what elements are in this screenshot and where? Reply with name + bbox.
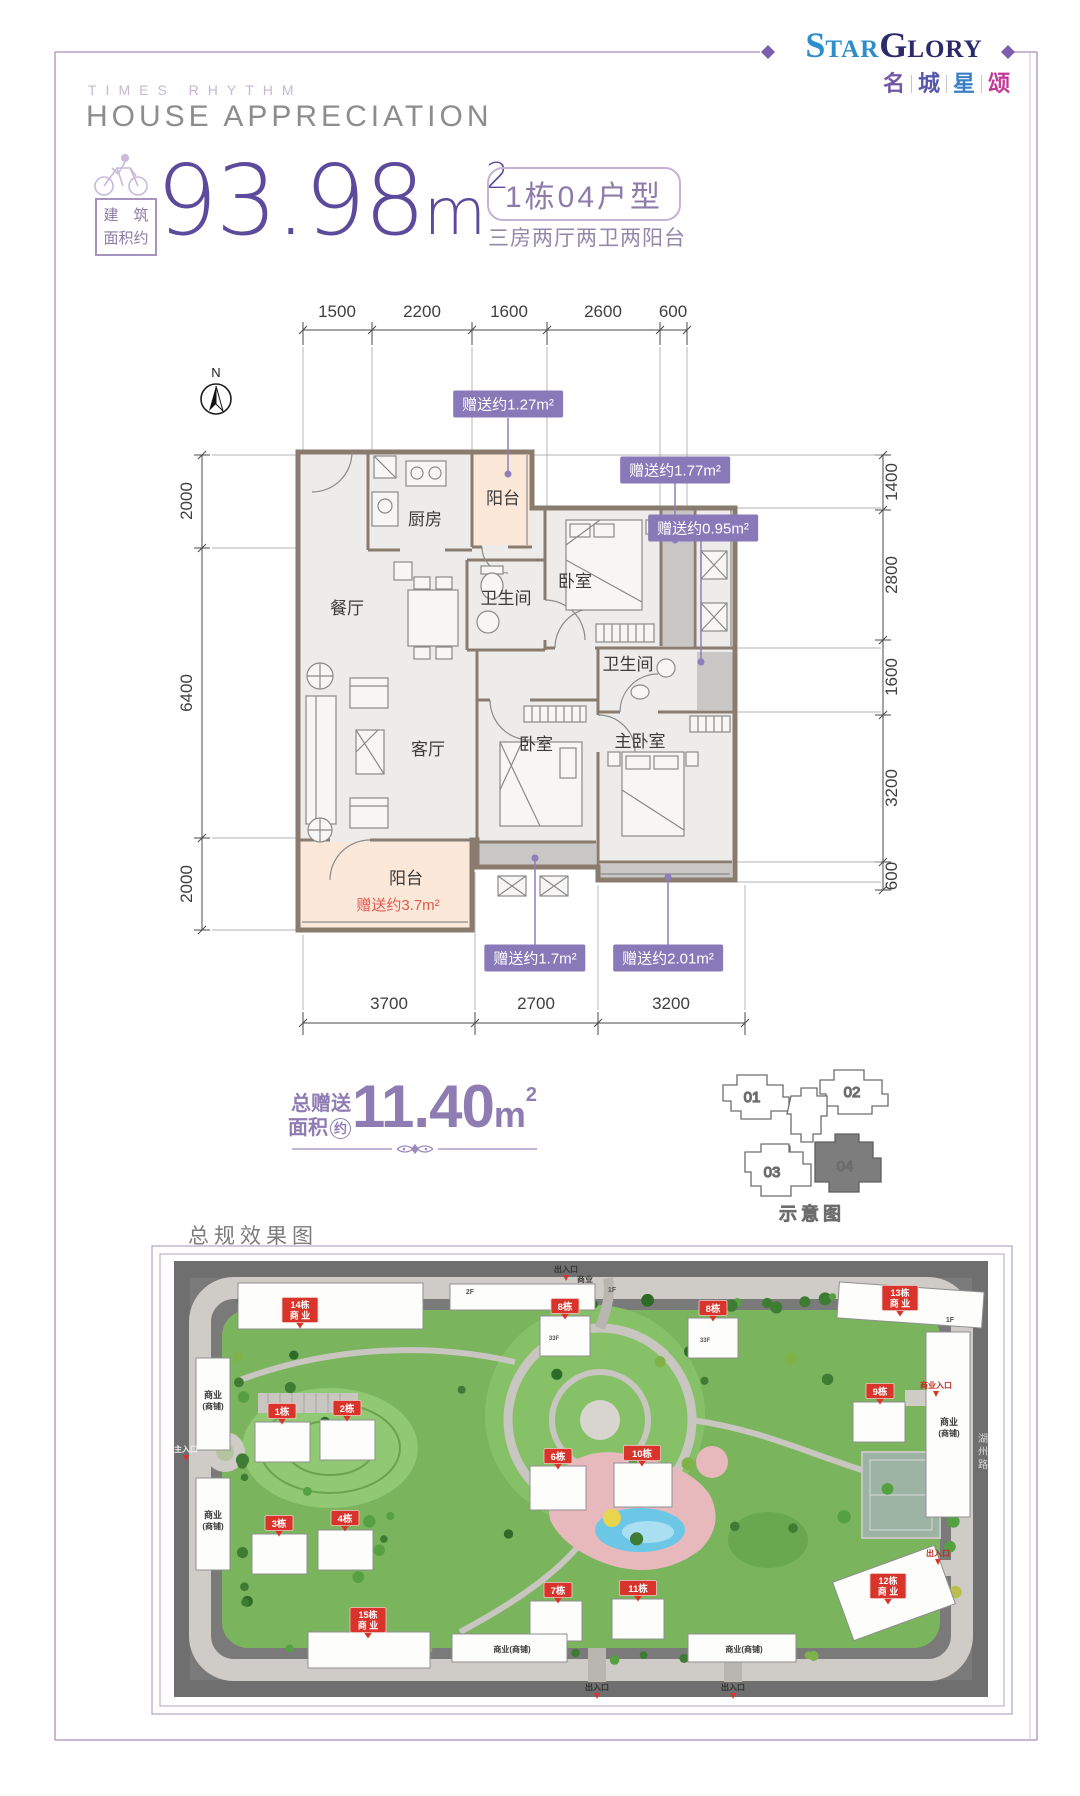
svg-text:01: 01 bbox=[744, 1089, 761, 1106]
diamond-icon bbox=[761, 45, 775, 59]
svg-text:主入口: 主入口 bbox=[174, 1444, 198, 1454]
svg-text:1F: 1F bbox=[946, 1317, 955, 1324]
svg-text:(商铺): (商铺) bbox=[202, 1401, 224, 1411]
svg-text:2000: 2000 bbox=[177, 865, 196, 903]
flourish-divider bbox=[292, 1144, 537, 1154]
svg-text:2栋: 2栋 bbox=[340, 1403, 355, 1415]
svg-text:10栋: 10栋 bbox=[632, 1448, 653, 1460]
cyclist-icon bbox=[95, 154, 147, 195]
svg-text:出入口: 出入口 bbox=[554, 1264, 578, 1274]
svg-text:3700: 3700 bbox=[370, 994, 408, 1013]
svg-text:商业入口: 商业入口 bbox=[920, 1380, 952, 1390]
svg-text:1600: 1600 bbox=[490, 302, 528, 321]
area-value: 93.98m2 bbox=[156, 144, 509, 257]
balcony-gift-note: 赠送约3.7m² bbox=[356, 897, 439, 914]
svg-text:商业: 商业 bbox=[204, 1389, 222, 1400]
svg-text:13栋: 13栋 bbox=[890, 1287, 909, 1298]
svg-text:商 业: 商 业 bbox=[890, 1298, 911, 1309]
svg-text:2600: 2600 bbox=[584, 302, 622, 321]
svg-text:1400: 1400 bbox=[882, 463, 901, 501]
keyplan-caption: 示意图 bbox=[779, 1204, 845, 1224]
svg-text:3栋: 3栋 bbox=[272, 1518, 287, 1530]
svg-text:6栋: 6栋 bbox=[551, 1451, 566, 1463]
svg-text:3200: 3200 bbox=[652, 994, 690, 1013]
room-label-dining: 餐厅 bbox=[330, 599, 364, 618]
svg-text:2F: 2F bbox=[466, 1289, 475, 1296]
poster-page: N 1500 2200 1600 2600 600 2000 6400 2000 bbox=[0, 0, 1080, 1796]
brand-kicker: TIMES RHYTHM bbox=[88, 82, 303, 98]
svg-text:8栋: 8栋 bbox=[706, 1303, 721, 1315]
svg-text:商 业: 商 业 bbox=[358, 1620, 379, 1631]
built-area-tag-line2: 面积约 bbox=[103, 227, 148, 250]
svg-text:湖州路: 湖州路 bbox=[978, 1433, 988, 1471]
room-label-living: 客厅 bbox=[411, 740, 445, 759]
svg-text:2200: 2200 bbox=[403, 302, 441, 321]
site-plan: 14栋商 业8栋8栋13栋商 业1栋2栋9栋6栋10栋3栋4栋7栋11栋12栋商… bbox=[152, 1246, 1012, 1714]
room-label-balcony-bottom: 阳台 bbox=[389, 869, 423, 888]
svg-text:1F: 1F bbox=[608, 1287, 617, 1294]
room-label-bedroom-top: 卧室 bbox=[558, 572, 592, 591]
svg-text:2000: 2000 bbox=[177, 482, 196, 520]
svg-text:商业: 商业 bbox=[577, 1274, 593, 1284]
room-label-bath-right: 卫生间 bbox=[603, 655, 654, 674]
svg-text:8栋: 8栋 bbox=[558, 1301, 573, 1313]
svg-text:4栋: 4栋 bbox=[338, 1513, 353, 1525]
built-area-tag-line1: 建 筑 bbox=[103, 204, 148, 227]
gift-area-17 bbox=[479, 842, 596, 865]
balcony-bottom-area bbox=[300, 842, 470, 928]
room-label-bath-mid: 卫生间 bbox=[481, 589, 532, 608]
gift-chip-0-95: 赠送约0.95m² bbox=[648, 515, 758, 542]
unit-type-badge: 1栋04户型 bbox=[487, 167, 681, 221]
gift-chip-1-7: 赠送约1.7m² bbox=[484, 945, 585, 972]
svg-text:9栋: 9栋 bbox=[873, 1386, 888, 1398]
svg-text:03: 03 bbox=[764, 1164, 781, 1181]
svg-text:7栋: 7栋 bbox=[551, 1585, 566, 1597]
svg-text:1栋: 1栋 bbox=[275, 1406, 290, 1418]
svg-text:出入口: 出入口 bbox=[721, 1682, 745, 1692]
svg-text:2800: 2800 bbox=[882, 556, 901, 594]
svg-text:商业(商铺): 商业(商铺) bbox=[493, 1644, 531, 1654]
room-label-bedroom-mid: 卧室 bbox=[519, 735, 553, 754]
svg-text:11栋: 11栋 bbox=[628, 1583, 648, 1595]
svg-text:2700: 2700 bbox=[517, 994, 555, 1013]
unit-type-subtitle: 三房两厅两卫两阳台 bbox=[488, 222, 686, 252]
svg-text:出入口: 出入口 bbox=[585, 1682, 609, 1692]
siteplan-caption: 总规效果图 bbox=[188, 1220, 318, 1250]
total-gift-value: 11.40m2 bbox=[352, 1072, 537, 1141]
brand-logo-cn: 名城星颂 bbox=[778, 66, 1010, 98]
svg-text:N: N bbox=[211, 365, 220, 380]
svg-text:14栋: 14栋 bbox=[290, 1299, 309, 1310]
svg-text:1600: 1600 bbox=[882, 658, 901, 696]
built-area-tag: 建 筑 面积约 bbox=[95, 198, 157, 256]
svg-text:02: 02 bbox=[844, 1084, 861, 1101]
page-title: HOUSE APPRECIATION bbox=[86, 100, 493, 134]
total-gift-label: 总赠送 面积约 bbox=[288, 1093, 351, 1139]
approx-circle: 约 bbox=[330, 1118, 351, 1139]
svg-text:商 业: 商 业 bbox=[290, 1310, 311, 1321]
svg-text:商 业: 商 业 bbox=[878, 1586, 899, 1597]
gift-chip-1-27: 赠送约1.27m² bbox=[453, 391, 563, 418]
north-arrow-icon: N bbox=[201, 365, 231, 414]
gift-chip-1-77: 赠送约1.77m² bbox=[620, 457, 730, 484]
svg-text:(商铺): (商铺) bbox=[938, 1428, 960, 1438]
svg-text:600: 600 bbox=[659, 302, 687, 321]
svg-text:商业: 商业 bbox=[204, 1509, 222, 1520]
svg-text:15栋: 15栋 bbox=[358, 1609, 377, 1620]
svg-text:6400: 6400 bbox=[177, 674, 196, 712]
gift-chip-2-01: 赠送约2.01m² bbox=[613, 945, 723, 972]
poster-graphics: N 1500 2200 1600 2600 600 2000 6400 2000 bbox=[0, 0, 1080, 1796]
svg-text:(商铺): (商铺) bbox=[202, 1521, 224, 1531]
svg-text:商业: 商业 bbox=[940, 1416, 958, 1427]
key-plan: 01 02 03 04 示意图 bbox=[723, 1070, 888, 1224]
area-number: 93.98 bbox=[156, 144, 424, 257]
svg-text:33F: 33F bbox=[549, 1336, 560, 1342]
area-unit: m bbox=[424, 176, 486, 250]
svg-text:12栋: 12栋 bbox=[878, 1575, 897, 1586]
svg-text:出入口: 出入口 bbox=[926, 1548, 950, 1558]
svg-text:商业(商铺): 商业(商铺) bbox=[725, 1644, 763, 1654]
svg-text:3200: 3200 bbox=[882, 769, 901, 807]
floor-plan: 厨房 阳台 卧室 卫生间 餐厅 客厅 卧室 主卧室 卫生间 阳台 赠送约3.7m… bbox=[298, 418, 735, 947]
room-label-balcony-top: 阳台 bbox=[486, 489, 520, 508]
svg-text:600: 600 bbox=[882, 862, 901, 890]
room-label-kitchen: 厨房 bbox=[408, 510, 442, 529]
svg-text:04: 04 bbox=[837, 1158, 854, 1175]
brand-logo: STARGLORY bbox=[778, 24, 1010, 66]
svg-text:1500: 1500 bbox=[318, 302, 356, 321]
room-label-master: 主卧室 bbox=[615, 732, 666, 751]
svg-text:33F: 33F bbox=[700, 1338, 711, 1344]
